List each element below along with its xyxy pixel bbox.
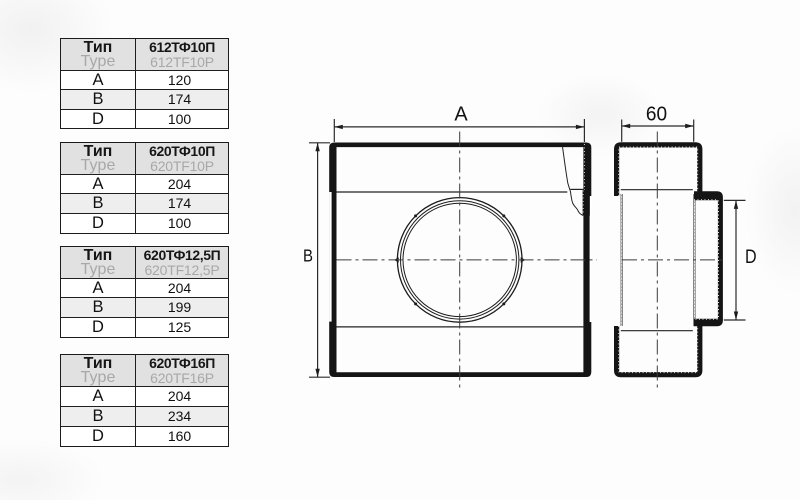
svg-text:60: 60 <box>646 103 667 125</box>
svg-text:B: B <box>303 245 313 265</box>
svg-text:D: D <box>745 246 757 268</box>
svg-text:A: A <box>454 103 468 126</box>
